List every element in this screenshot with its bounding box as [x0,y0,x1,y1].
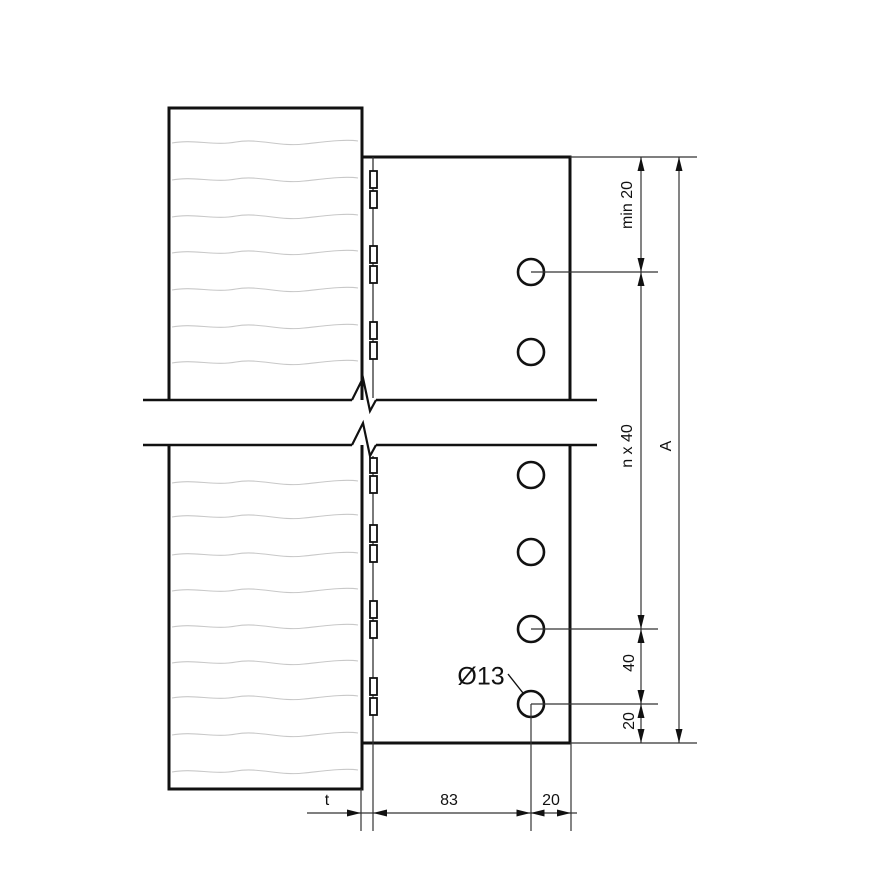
timber-member-upper [169,108,362,400]
dim-label-40: 40 [622,654,638,672]
wood-grain-lines-lower [172,480,358,773]
timber-member-lower [169,445,362,789]
wood-grain-lines-upper [172,140,358,364]
dimension-chain-right [638,157,645,743]
dim-label-20-horizontal: 20 [542,793,560,809]
steel-plate-upper [362,157,570,400]
dimension-chain-bottom [307,810,577,817]
hole-diameter-label: Ø13 [457,665,504,690]
bolt-hole [518,462,544,488]
dim-label-20-vertical: 20 [622,712,638,730]
break-line-lower [143,423,597,456]
dim-label-min-edge: min 20 [620,181,636,229]
drawing-linework [0,0,880,880]
dimension-overall-A [676,157,683,743]
technical-drawing-canvas: min 20 n x 40 40 20 A t 83 20 Ø13 [0,0,880,880]
hole-diameter-leader-line [508,674,523,693]
break-line-upper [143,378,597,411]
dim-label-total-height: A [659,441,675,452]
bolt-hole [518,339,544,365]
dim-label-pitch: n x 40 [620,424,636,468]
steel-plate-lower [362,445,570,743]
break-zigzag [352,423,376,456]
bolt-hole [518,539,544,565]
dim-label-83: 83 [440,793,458,809]
dim-label-plate-thickness: t [325,793,329,809]
